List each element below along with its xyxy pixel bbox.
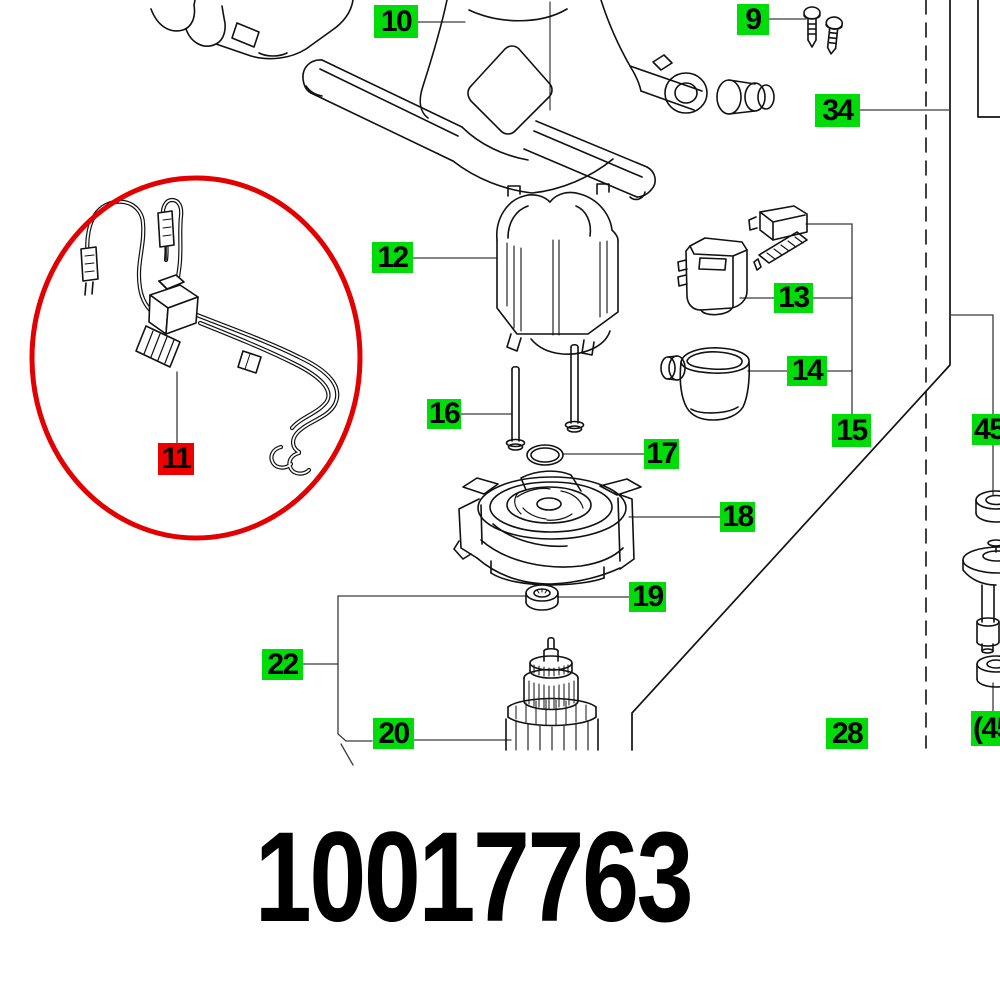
wiring-harness-drawing	[81, 200, 337, 474]
spindle-parts-drawing	[963, 491, 1000, 687]
container-drawing	[661, 348, 749, 420]
part-badge-45-ref[interactable]: (45	[971, 711, 1000, 746]
part-badge-14[interactable]: 14	[787, 356, 827, 386]
part-badge-11-highlighted[interactable]: 11	[158, 443, 194, 475]
part-badge-12[interactable]: 12	[372, 242, 413, 273]
part-badge-20[interactable]: 20	[373, 718, 414, 749]
armature-drawing	[506, 638, 598, 750]
part-badge-22[interactable]: 22	[262, 649, 303, 680]
parts-diagram-page: 9 10 34 11 12 13 14 15 16 17 18 19 20 22…	[0, 0, 1000, 1000]
highlight-circle	[32, 178, 360, 538]
part-badge-16[interactable]: 16	[427, 399, 461, 429]
o-ring-drawing	[527, 445, 563, 465]
screws-drawing	[804, 7, 843, 55]
part-badge-18[interactable]: 18	[720, 502, 755, 532]
part-badge-19[interactable]: 19	[629, 582, 666, 612]
part-badge-15[interactable]: 15	[832, 414, 871, 447]
part-badge-10[interactable]: 10	[374, 5, 418, 38]
part-badge-17[interactable]: 17	[644, 439, 679, 469]
long-screws-drawing	[507, 345, 584, 450]
part-badge-45[interactable]: 45	[972, 414, 1000, 445]
part-badge-9[interactable]: 9	[737, 4, 769, 35]
part-badge-13[interactable]: 13	[774, 283, 813, 313]
brush-holder-drawing	[749, 206, 807, 270]
fan-housing-drawing	[454, 471, 641, 585]
switch-drawing	[678, 238, 747, 315]
part-badge-28[interactable]: 28	[826, 718, 868, 749]
bearing-drawing	[526, 585, 558, 610]
part-badge-34[interactable]: 34	[815, 94, 860, 127]
corner-box-line	[978, 0, 1000, 117]
clamp-part-drawing	[151, 0, 353, 59]
stator-drawing	[497, 184, 618, 355]
document-part-number: 10017763	[255, 814, 691, 942]
